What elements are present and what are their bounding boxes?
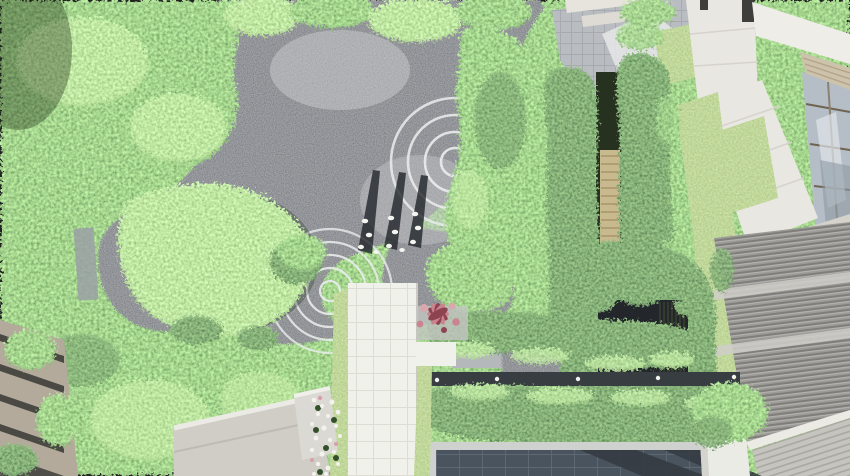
bird <box>410 240 416 244</box>
hedge-sunlit-fringe <box>610 390 670 406</box>
gravel-light-patch <box>270 30 410 110</box>
overhang-leaves <box>36 394 80 446</box>
bird <box>362 219 368 224</box>
bird <box>366 233 372 238</box>
canopy-light-patch <box>130 94 226 162</box>
flower-dot <box>326 466 331 471</box>
flower-dot <box>336 462 340 466</box>
flower-dot <box>314 436 319 441</box>
maple-leaf <box>441 327 447 333</box>
flower-dot <box>328 438 332 442</box>
maple-leaf <box>452 318 460 326</box>
bird <box>415 226 421 231</box>
flower-dot <box>319 451 324 456</box>
hedge-fringe <box>584 288 616 312</box>
hedge-sunlit-fringe <box>526 388 594 404</box>
stone-band <box>430 372 740 386</box>
flower-dot-pink <box>318 396 322 400</box>
bird <box>373 250 379 254</box>
maple-leaf <box>420 304 428 312</box>
pool-coping <box>430 442 730 450</box>
pond-edge-bush <box>238 326 278 350</box>
flower-dot <box>316 412 320 416</box>
hedge-sunlit-fringe <box>585 356 645 372</box>
bird <box>412 212 418 217</box>
path-light <box>576 377 580 381</box>
canopy-dark-clump <box>474 72 526 168</box>
flower-dot <box>324 472 328 476</box>
flower-foliage <box>333 455 339 461</box>
flower-dot <box>312 398 317 403</box>
bird <box>358 245 364 249</box>
pond-edge-bush <box>170 316 222 344</box>
flower-dot <box>326 414 330 418</box>
hedge-sunlit-fringe <box>450 384 510 400</box>
flower-dot <box>336 410 341 415</box>
landscape-render <box>0 0 850 476</box>
window-slit <box>700 0 708 10</box>
hedge-highlight <box>656 96 680 144</box>
hedge-sunlit-fringe <box>650 352 694 368</box>
path-light <box>435 378 439 382</box>
maple-leaf <box>417 321 424 328</box>
path-light <box>495 377 499 381</box>
flower-foliage <box>323 445 329 451</box>
flower-dot-pink <box>310 458 314 462</box>
flower-dot <box>310 448 314 452</box>
flower-dot <box>321 425 326 430</box>
flower-foliage <box>317 469 323 475</box>
path-light <box>656 376 660 380</box>
japanese-maple <box>416 302 468 340</box>
flower-dot <box>334 424 338 428</box>
canopy-top-fringe <box>368 0 464 42</box>
flower-foliage <box>313 427 319 433</box>
path-light <box>732 375 736 379</box>
flower-dot <box>338 434 342 438</box>
overhang-leaves <box>4 330 56 370</box>
hedge-sunlit-fringe <box>510 348 570 364</box>
bird <box>399 248 405 252</box>
planter-shrub <box>692 416 732 448</box>
flower-dot <box>316 462 320 466</box>
flower-dot <box>320 404 324 408</box>
hedge-fringe <box>710 248 734 292</box>
flower-foliage <box>331 417 337 423</box>
ring-clump <box>278 234 326 270</box>
hedge-fringe <box>674 296 702 316</box>
flower-dot <box>310 422 314 426</box>
bird <box>386 244 392 248</box>
hedge-fringe <box>620 286 660 306</box>
bird <box>388 216 394 221</box>
flower-dot <box>312 472 316 476</box>
maple-leaf <box>449 303 456 310</box>
flower-dot <box>329 399 334 404</box>
overhang-branch <box>616 22 664 50</box>
flower-dot <box>332 450 336 454</box>
walkway-main <box>348 283 418 476</box>
canopy-light-patch <box>452 170 488 230</box>
flower-dot-pink <box>334 442 338 446</box>
walkway-stub <box>416 342 456 366</box>
aerial-garden-svg <box>0 0 850 476</box>
bird <box>392 230 398 235</box>
